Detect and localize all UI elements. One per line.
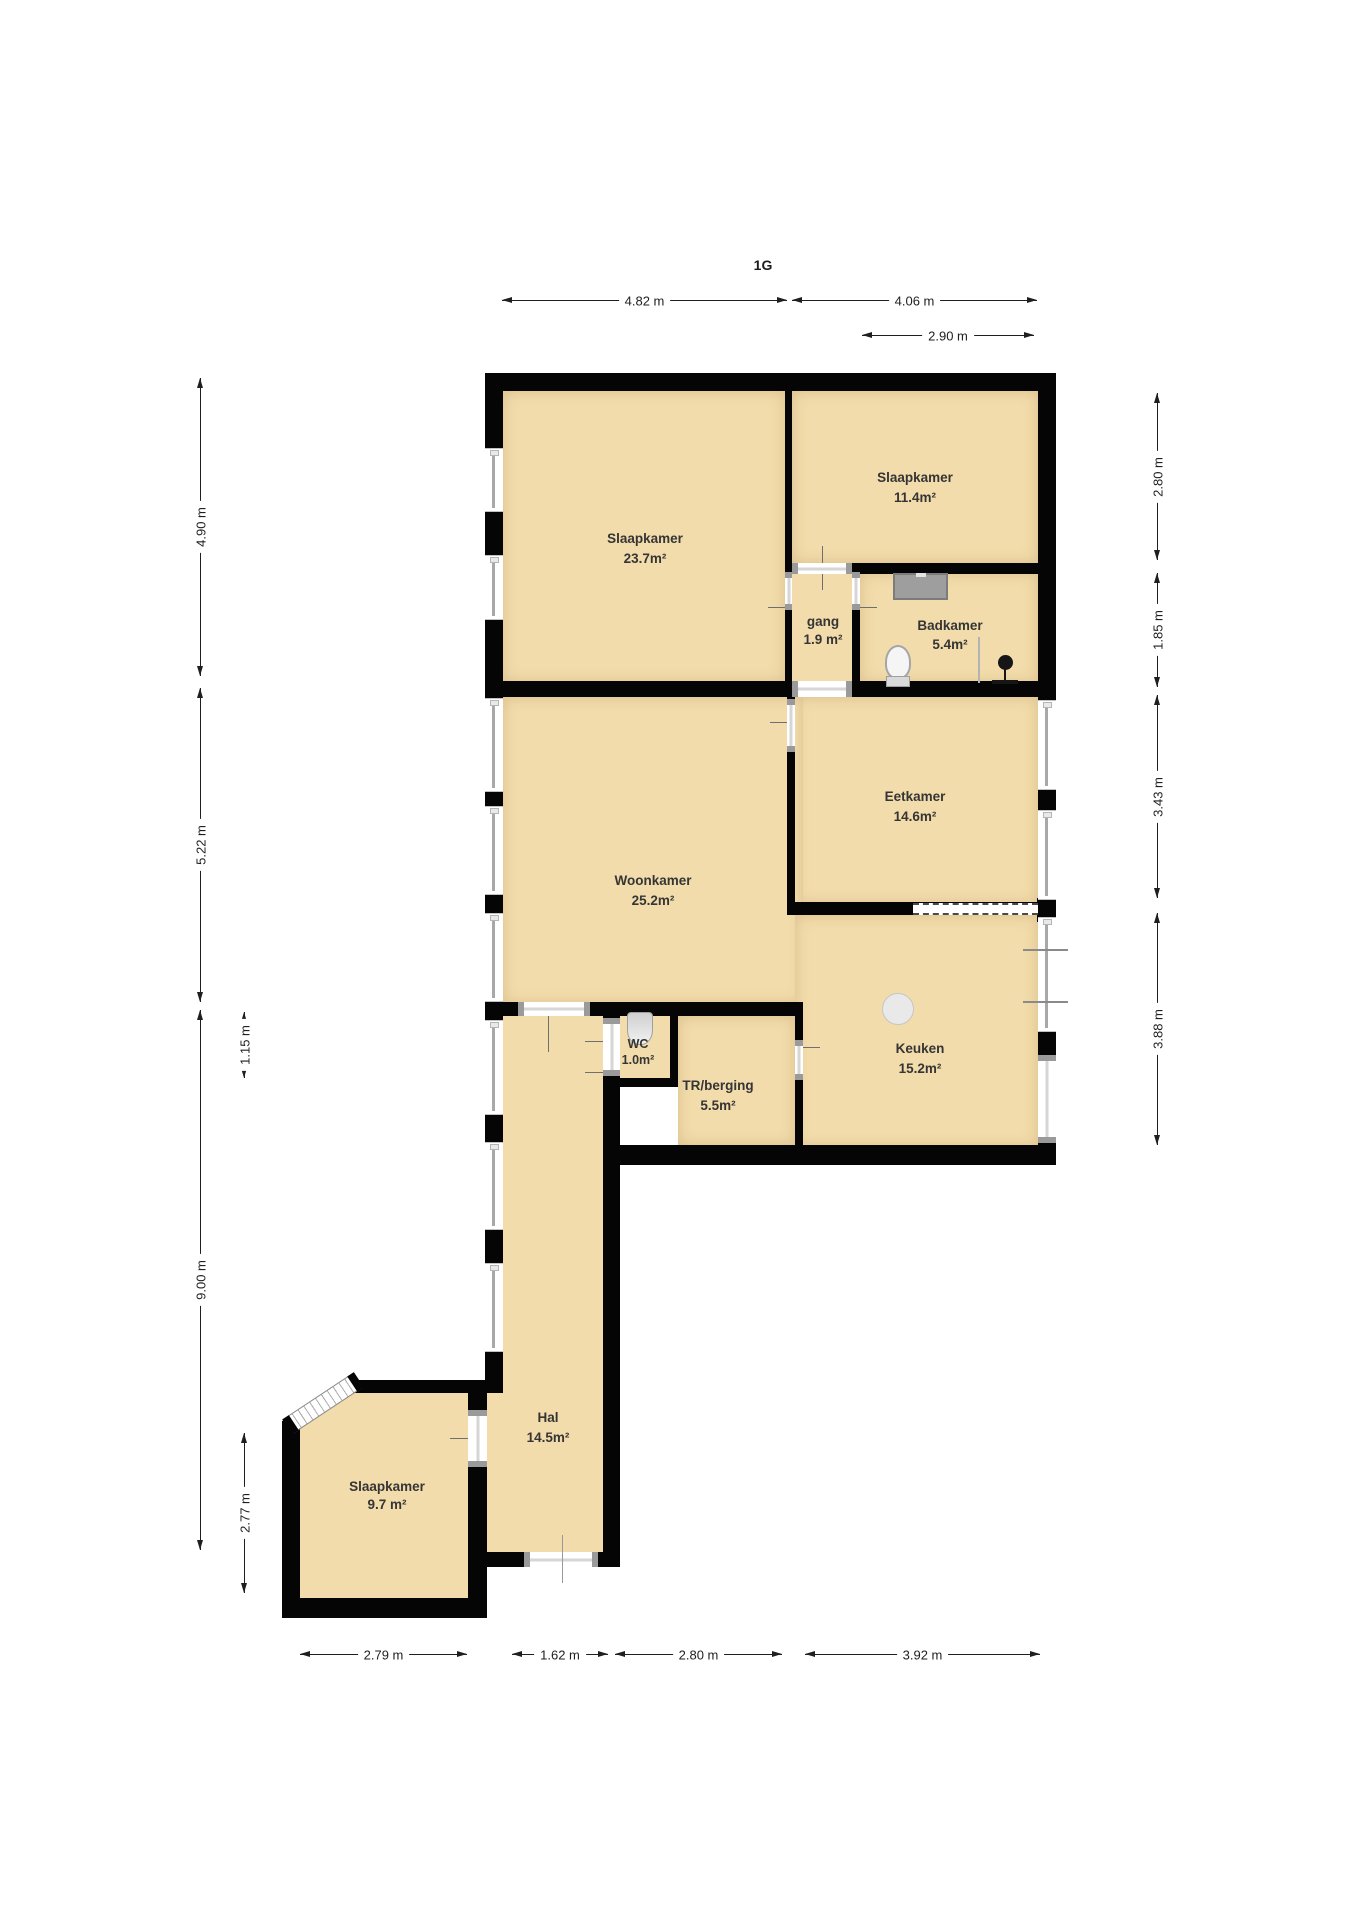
- dimension-right-4: 3.88 m: [1157, 913, 1158, 1145]
- dimension-label: 4.90 m: [194, 501, 209, 553]
- dimension-label: 5.22 m: [194, 819, 209, 871]
- dimension-bottom-1: 2.79 m: [300, 1654, 467, 1655]
- dimension-label: 3.43 m: [1151, 771, 1166, 823]
- window-slaapkamer237-1: [485, 448, 503, 512]
- dimension-label: 3.88 m: [1151, 1003, 1166, 1055]
- room-label-eetkamer: Eetkamer 14.6m²: [885, 787, 946, 827]
- room-label-slaapkamer-9-7: Slaapkamer 9.7 m²: [349, 1478, 425, 1514]
- toilet-icon: [885, 645, 911, 679]
- dimension-label: 1.62 m: [534, 1648, 586, 1663]
- room-label-hal: Hal 14.5m²: [527, 1408, 570, 1448]
- dimension-top-1: 4.82 m: [502, 300, 787, 301]
- room-hal-floor-lower: [487, 1380, 603, 1552]
- door-gang-slaapkamer114: [792, 563, 852, 574]
- dimension-bottom-2: 1.62 m: [512, 1654, 608, 1655]
- dimension-label: 2.80 m: [673, 1648, 725, 1663]
- window-woonkamer-3: [485, 913, 503, 1002]
- entrance-door-swing: [562, 1535, 563, 1583]
- room-area: 5.5m²: [682, 1096, 753, 1116]
- floorplan-canvas: 1G: [0, 0, 1358, 1920]
- dimension-left-1: 4.90 m: [200, 378, 201, 676]
- window-hal-1: [485, 1020, 503, 1115]
- door-swing-tick: [770, 722, 787, 723]
- room-label-woonkamer: Woonkamer 25.2m²: [614, 871, 691, 911]
- door-slaapkamer97: [468, 1410, 487, 1467]
- floor-title: 1G: [754, 257, 773, 273]
- window-eetkamer-2: [1038, 810, 1056, 900]
- dimension-label: 2.90 m: [922, 329, 974, 344]
- door-keuken-balkon: [1038, 1055, 1056, 1143]
- room-name: Slaapkamer: [349, 1478, 425, 1496]
- room-area: 14.6m²: [885, 807, 946, 827]
- wall-outer-top: [485, 373, 1056, 391]
- wall-hal-right: [603, 1016, 620, 1552]
- window-slaapkamer237-2: [485, 555, 503, 620]
- kitchen-circle-icon: [882, 993, 914, 1025]
- room-area: 15.2m²: [896, 1059, 945, 1079]
- room-name: Hal: [527, 1408, 570, 1428]
- toilet-tank-icon: [886, 676, 910, 687]
- room-name: Slaapkamer: [607, 529, 683, 549]
- door-swing-tick: [450, 1438, 468, 1439]
- room-area: 1.0m²: [622, 1052, 655, 1068]
- door-gang-eetkamer: [792, 681, 852, 697]
- room-name: WC: [622, 1036, 655, 1052]
- dimension-left-3: 1.15 m: [244, 1012, 245, 1078]
- room-woonkamer-floor: [503, 697, 803, 1004]
- door-swing-tick: [822, 574, 823, 590]
- door-swing-tick: [548, 1016, 549, 1052]
- dimension-left-5: 2.77 m: [244, 1433, 245, 1593]
- dimension-label: 9.00 m: [194, 1254, 209, 1306]
- wall-mid-horizontal: [485, 681, 1056, 697]
- door-swing-tick: [822, 546, 823, 563]
- sliding-door-eetkamer-keuken: [913, 903, 1038, 915]
- door-gang-badkamer: [852, 572, 860, 610]
- room-area: 23.7m²: [607, 549, 683, 569]
- wall-slaapkamer97-bottom: [282, 1598, 487, 1618]
- dimension-label: 2.77 m: [238, 1487, 253, 1539]
- room-label-slaapkamer-23-7: Slaapkamer 23.7m²: [607, 529, 683, 569]
- wall-wc-right: [670, 1016, 678, 1087]
- wall-tr-keuken: [795, 1016, 803, 1145]
- door-gang-slaapkamer237: [785, 572, 792, 610]
- dimension-right-3: 3.43 m: [1157, 695, 1158, 898]
- wall-keuken-bottom: [603, 1145, 1056, 1165]
- dimension-right-1: 2.80 m: [1157, 393, 1158, 560]
- window-hal-2: [485, 1142, 503, 1230]
- dimension-left-2: 5.22 m: [200, 688, 201, 1002]
- washbasin-icon: [893, 573, 948, 600]
- door-swing-tick: [585, 1041, 603, 1042]
- room-name: TR/berging: [682, 1076, 753, 1096]
- dimension-label: 4.82 m: [619, 294, 671, 309]
- shower-base: [992, 680, 1018, 684]
- room-label-tr-berging: TR/berging 5.5m²: [682, 1076, 753, 1116]
- wall-wc-bottom: [603, 1078, 678, 1087]
- dimension-label: 1.15 m: [238, 1019, 253, 1071]
- room-keuken-floor: [795, 915, 1038, 1147]
- wall-bedroom-divider: [785, 391, 792, 683]
- door-tr-berging: [795, 1040, 803, 1080]
- room-name: gang: [803, 613, 842, 631]
- room-label-badkamer: Badkamer 5.4m²: [917, 616, 982, 654]
- door-entrance: [524, 1552, 598, 1567]
- door-swing-tick: [585, 1072, 603, 1073]
- room-area: 25.2m²: [614, 891, 691, 911]
- room-area: 5.4m²: [917, 635, 982, 654]
- window-hal-3: [485, 1263, 503, 1352]
- door-woonkamer-hal: [518, 1002, 590, 1016]
- dimension-top-3: 2.90 m: [862, 335, 1034, 336]
- room-name: Badkamer: [917, 616, 982, 635]
- room-area: 9.7 m²: [349, 1496, 425, 1514]
- dimension-bottom-3: 2.80 m: [615, 1654, 782, 1655]
- wall-slaapkamer97-left: [282, 1421, 300, 1618]
- window-woonkamer-2: [485, 806, 503, 895]
- dimension-right-2: 1.85 m: [1157, 573, 1158, 687]
- door-woonkamer-eetkamer: [787, 699, 795, 752]
- dimension-bottom-4: 3.92 m: [805, 1654, 1040, 1655]
- dimension-left-4: 9.00 m: [200, 1010, 201, 1550]
- dimension-label: 1.85 m: [1151, 604, 1166, 656]
- door-swing-tick: [860, 607, 877, 608]
- room-label-keuken: Keuken 15.2m²: [896, 1039, 945, 1079]
- room-name: Keuken: [896, 1039, 945, 1059]
- room-area: 1.9 m²: [803, 631, 842, 649]
- dimension-label: 2.79 m: [358, 1648, 410, 1663]
- window-eetkamer-1: [1038, 700, 1056, 790]
- window-keuken: [1038, 917, 1056, 1032]
- room-label-slaapkamer-11-4: Slaapkamer 11.4m²: [877, 468, 953, 508]
- room-label-gang: gang 1.9 m²: [803, 613, 842, 649]
- balcony-rail-line: [1023, 949, 1068, 951]
- room-name: Eetkamer: [885, 787, 946, 807]
- room-name: Slaapkamer: [877, 468, 953, 488]
- window-woonkamer-1: [485, 698, 503, 792]
- room-name: Woonkamer: [614, 871, 691, 891]
- door-swing-tick: [803, 1047, 820, 1048]
- dimension-label: 3.92 m: [897, 1648, 949, 1663]
- room-area: 14.5m²: [527, 1428, 570, 1448]
- door-swing-tick: [768, 607, 785, 608]
- dimension-label: 4.06 m: [889, 294, 941, 309]
- dimension-label: 2.80 m: [1151, 451, 1166, 503]
- room-label-wc: WC 1.0m²: [622, 1036, 655, 1068]
- room-area: 11.4m²: [877, 488, 953, 508]
- dimension-top-2: 4.06 m: [792, 300, 1037, 301]
- door-wc: [603, 1018, 620, 1076]
- balcony-rail-line: [1023, 1001, 1068, 1003]
